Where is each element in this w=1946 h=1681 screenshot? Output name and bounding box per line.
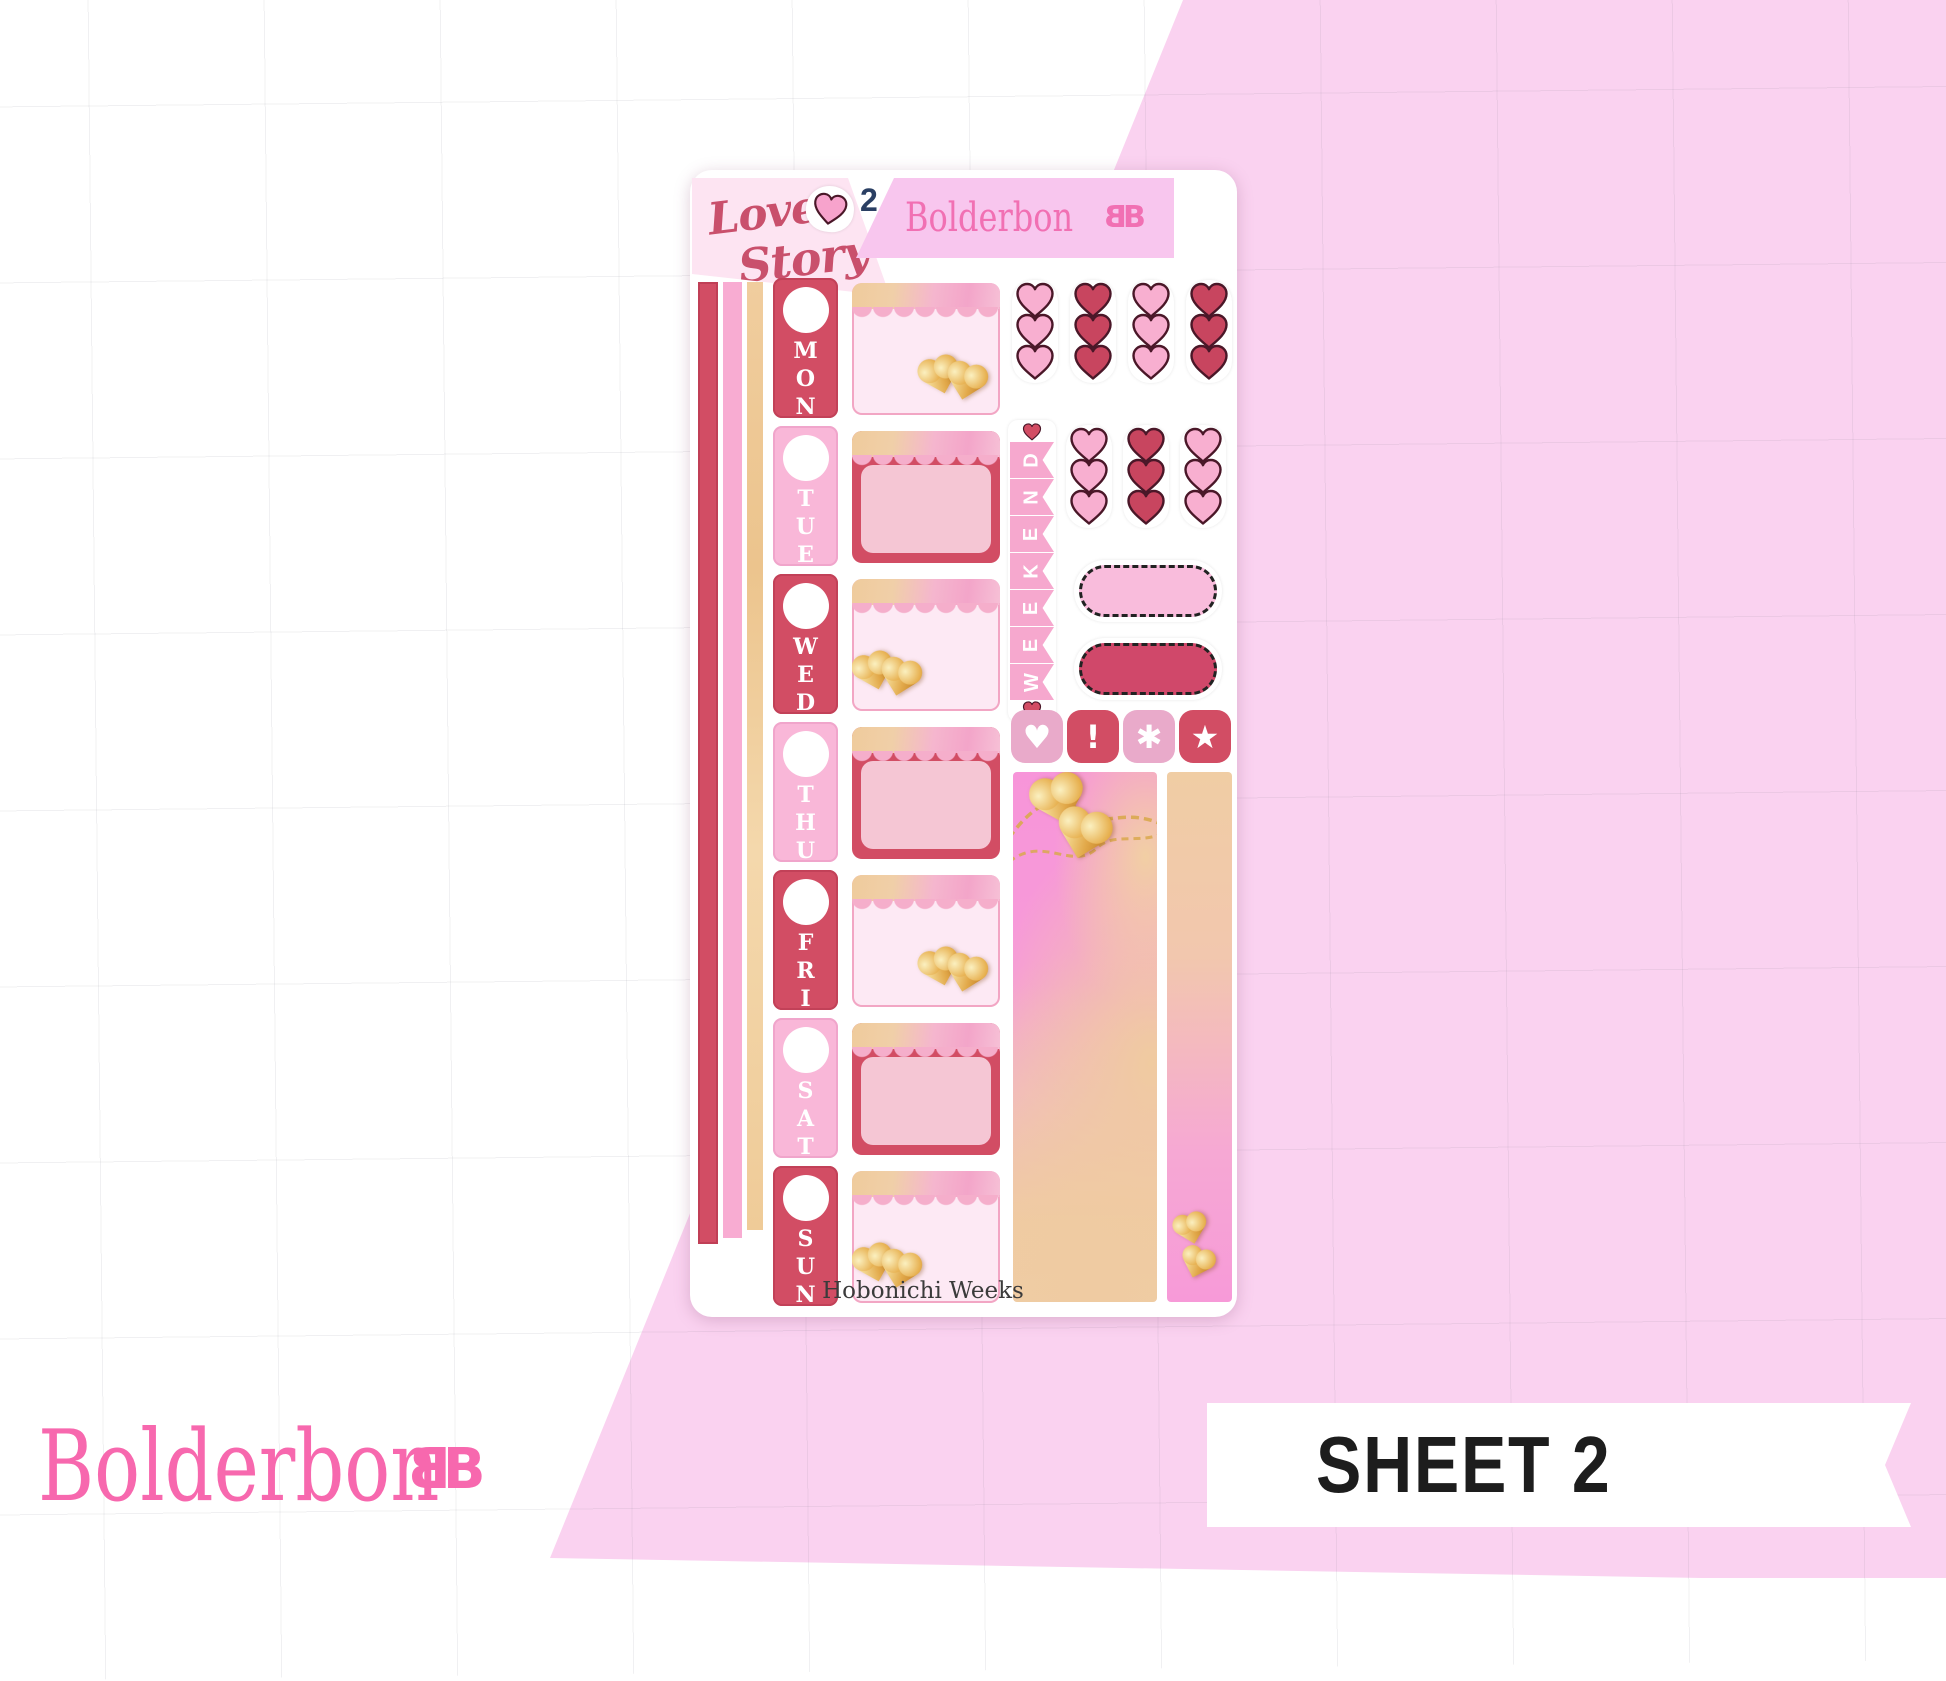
day-label: TUE: [795, 486, 817, 570]
washi-band: [852, 431, 1000, 457]
heart-icon: [810, 190, 850, 228]
sticker-sheet: Love Story 2 Bolderbon BB MONTUEWEDTHUFR…: [690, 170, 1237, 1317]
asterisk-icon: ✱: [1123, 710, 1175, 763]
washi-band: [852, 579, 1000, 605]
scallop-edge: [852, 1047, 1000, 1061]
day-tab-wed: WED: [773, 574, 838, 714]
pill-fill: [1079, 643, 1217, 695]
heart-sticker-strip-red: [1123, 425, 1169, 528]
heart-icon: [1131, 344, 1171, 381]
label-pill-pink: [1074, 560, 1222, 622]
box-body: [861, 465, 991, 553]
day-label: SAT: [795, 1078, 817, 1162]
heart-icon: [1183, 489, 1223, 526]
box-body: [861, 1057, 991, 1145]
heart-icon: [1189, 344, 1229, 381]
gold-hearts: [928, 357, 992, 409]
heart-sticker-strip-red: [1186, 280, 1232, 383]
day-circle: [783, 1175, 829, 1221]
washi-band: [852, 727, 1000, 753]
day-circle: [783, 731, 829, 777]
washi-narrow-tan-pink: [1167, 772, 1232, 1302]
weekend-flag-letter: N: [1010, 479, 1054, 515]
gold-heart-icon: [1179, 1218, 1203, 1242]
scallop-edge: [852, 455, 1000, 469]
day-label: FRI: [795, 930, 817, 1014]
weekend-flag-letter: D: [1010, 442, 1054, 478]
heart-sticker-strip-red: [1070, 280, 1116, 383]
heart-sticker-strip-pink: [1066, 425, 1112, 528]
day-tab-tue: TUE: [773, 426, 838, 566]
box-body: [861, 761, 991, 849]
exclamation-icon: !: [1067, 710, 1119, 763]
bolderbon-monogram-icon: BB: [1104, 203, 1146, 233]
scallop-edge: [852, 603, 1000, 617]
planner-box-mon: [852, 283, 1000, 415]
day-label: MON: [795, 338, 817, 422]
day-label: THU: [795, 782, 817, 866]
heart-sticker-strip-pink: [1180, 425, 1226, 528]
day-tab-fri: FRI: [773, 870, 838, 1010]
washi-wide-pink-gold: [1013, 772, 1157, 1302]
weekend-flag-letter: K: [1010, 553, 1054, 589]
gold-hearts: [928, 949, 992, 1001]
scallop-edge: [852, 307, 1000, 321]
brand-banner: Bolderbon BB: [856, 178, 1174, 258]
washi-band: [852, 1171, 1000, 1197]
heart-sticker-grid-mid: [1066, 425, 1226, 528]
washi-strip-red: [698, 282, 718, 1244]
day-tab-thu: THU: [773, 722, 838, 862]
washi-strip-tan: [747, 282, 763, 1230]
scallop-edge: [852, 899, 1000, 913]
heart-sticker-grid-top: [1012, 280, 1232, 383]
washi-band: [852, 875, 1000, 901]
washi-band: [852, 1023, 1000, 1049]
day-tab-mon: MON: [773, 278, 838, 418]
sheet-number: 2: [860, 182, 878, 219]
gold-heart-icon: [1184, 1251, 1209, 1276]
heart-icon: [1126, 489, 1166, 526]
weekend-flag-letter: E: [1010, 590, 1054, 626]
bolderbon-monogram-icon: BB: [408, 1436, 486, 1501]
day-tab-sat: SAT: [773, 1018, 838, 1158]
heart-icon: [1069, 489, 1109, 526]
day-circle: [783, 287, 829, 333]
weekend-flags: DNEKEEW: [1010, 441, 1054, 701]
star-icon: ★: [1179, 710, 1231, 763]
planner-box-wed: [852, 579, 1000, 711]
weekend-flag-letter: E: [1010, 516, 1054, 552]
heart-icon: [1015, 344, 1055, 381]
washi-strip-pink: [723, 282, 742, 1238]
brand-name: Bolderbon: [905, 195, 1073, 241]
planner-box-tue: [852, 431, 1000, 563]
scallop-edge: [852, 751, 1000, 765]
planner-box-thu: [852, 727, 1000, 859]
heart-icon: [1073, 344, 1113, 381]
footer-brand-name: Bolderbon: [38, 1418, 440, 1516]
weekend-flag-letter: W: [1010, 664, 1054, 700]
scallop-edge: [852, 1195, 1000, 1209]
washi-band: [852, 283, 1000, 309]
pill-fill: [1079, 565, 1217, 617]
heart-sticker-strip-pink: [1128, 280, 1174, 383]
day-label: WED: [795, 634, 817, 718]
sheet-tag-label: SHEET 2: [1316, 1419, 1611, 1511]
heart-icon: [1022, 423, 1042, 441]
heart-sticker-strip-pink: [1012, 280, 1058, 383]
weekend-flag-letter: E: [1010, 627, 1054, 663]
day-circle: [783, 879, 829, 925]
heart-icon: ♥: [1011, 710, 1063, 763]
planner-box-sat: [852, 1023, 1000, 1155]
day-circle: [783, 1027, 829, 1073]
weekend-banner: DNEKEEW: [1008, 420, 1056, 722]
label-pill-red: [1074, 638, 1222, 700]
planner-box-fri: [852, 875, 1000, 1007]
sheet-tag-ribbon: SHEET 2: [1207, 1403, 1911, 1527]
gold-hearts: [862, 653, 926, 705]
sheet-size-label: Hobonichi Weeks: [813, 1278, 1033, 1304]
day-circle: [783, 435, 829, 481]
day-circle: [783, 583, 829, 629]
